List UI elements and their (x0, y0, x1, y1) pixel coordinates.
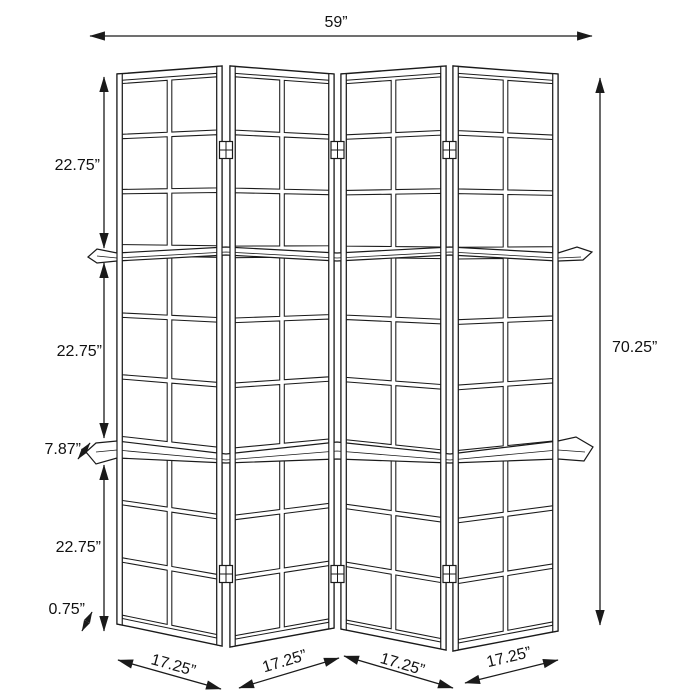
dim-label-base-height: 0.75” (49, 601, 85, 618)
dim-label-section-2: 22.75” (57, 343, 102, 360)
divider-drawing (86, 66, 593, 651)
dim-label-shelf-depth: 7.87” (45, 441, 81, 458)
dim-label-section-1: 22.75” (55, 157, 100, 174)
dim-label-section-3: 22.75” (56, 539, 101, 556)
dim-label-panel-4-width: 17.25” (485, 644, 533, 671)
room-divider-dimension-diagram: 59” 70.25” 22.75” 22.75” 22.75” 7.87” 0.… (0, 0, 700, 700)
dim-label-panel-3-width: 17.25” (378, 650, 426, 679)
dim-label-overall-height: 70.25” (612, 339, 657, 356)
diagram-canvas: 59” 70.25” 22.75” 22.75” 22.75” 7.87” 0.… (0, 0, 700, 700)
dim-label-overall-width: 59” (324, 14, 347, 31)
dim-label-panel-2-width: 17.25” (261, 647, 309, 676)
